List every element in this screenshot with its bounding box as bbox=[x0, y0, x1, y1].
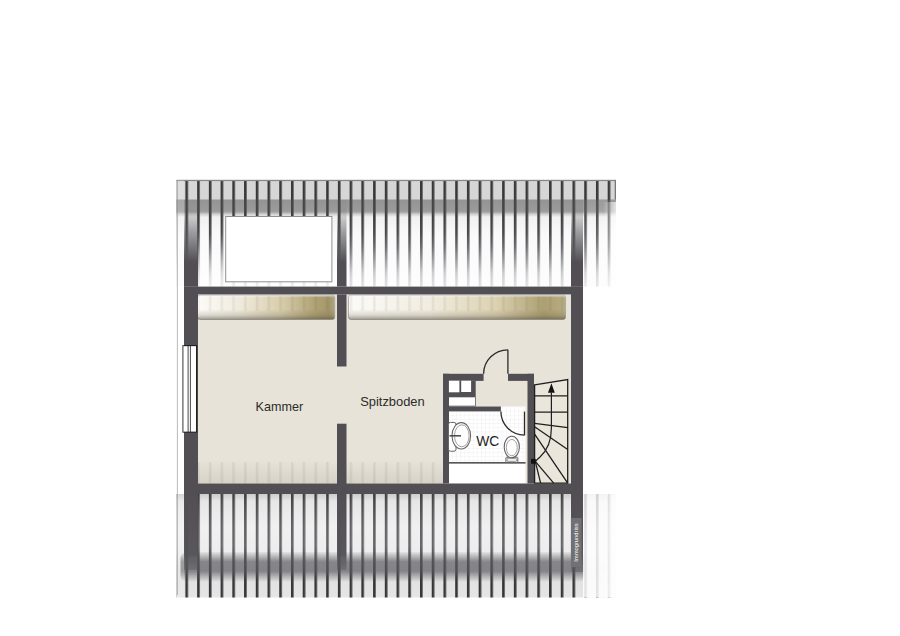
svg-text:WC: WC bbox=[476, 434, 499, 449]
svg-text:Immogrundriss: Immogrundriss bbox=[573, 523, 579, 561]
svg-text:Kammer: Kammer bbox=[256, 400, 304, 414]
svg-text:Spitzboden: Spitzboden bbox=[360, 394, 425, 409]
